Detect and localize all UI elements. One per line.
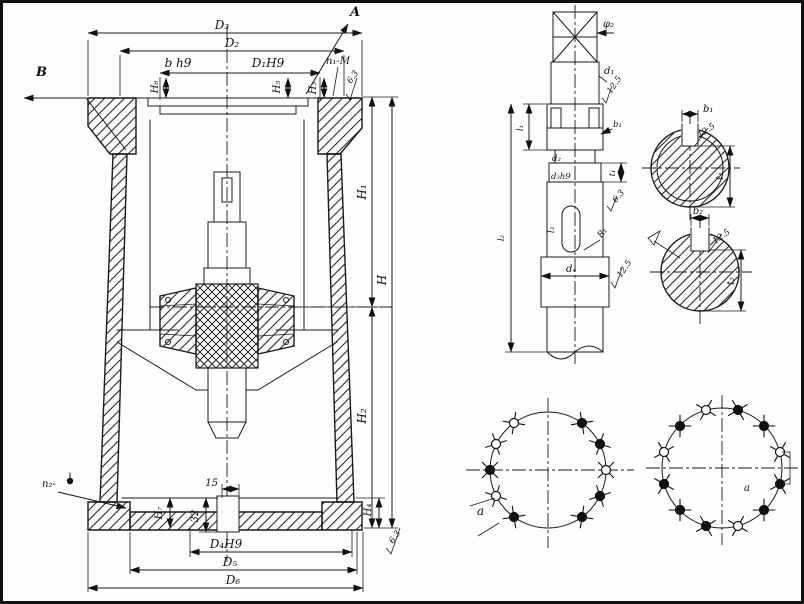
dim-h3-label: H₃ — [308, 82, 319, 96]
dim-b1-side-label: b₁ — [613, 120, 622, 130]
dim-h-label: H — [375, 274, 389, 286]
angle-a-label: a — [744, 483, 750, 494]
dim-h1-label: H₁ — [355, 184, 369, 200]
dim-h2-label: H₂ — [355, 408, 369, 424]
dim-l3: l₃ — [547, 226, 557, 233]
dim-l3-label: l₃ — [547, 226, 557, 233]
drawing-sheet: B A D₃ D₂ b h9 D₁H9 H₆ — [0, 0, 804, 604]
dim-15-label: 15 — [205, 478, 218, 489]
dim-h5-label: H₅ — [272, 81, 283, 95]
dim-32-label: 32 — [190, 510, 201, 523]
dim-h7-label: H₇ — [154, 507, 165, 521]
dim-d2-label: D₂ — [224, 36, 240, 50]
dim-d5-label: D₅ — [222, 555, 238, 569]
n2-label: n₂- — [42, 479, 56, 490]
dim-t1-label: t₁ — [715, 172, 726, 180]
dim-d1-label: d₁ — [604, 66, 614, 77]
dim-d4h9-label: D₄H9 — [209, 537, 243, 551]
technical-drawing: B A D₃ D₂ b h9 D₁H9 H₆ — [0, 0, 804, 604]
dim-d3h9-label: d₃h9 — [551, 172, 571, 182]
view-b-label: B — [35, 65, 47, 80]
view-a-label: A — [348, 5, 360, 20]
dim-phi2-label: φ₂ — [603, 19, 614, 30]
dim-d6-label: D₆ — [225, 573, 241, 587]
dim-t1-side-label: t₁ — [608, 170, 618, 177]
keyway-cut — [690, 228, 710, 251]
dim-t2-label: t₂ — [726, 277, 737, 285]
dim-d3-label: D₃ — [214, 18, 230, 32]
dim-d1h9-label: D₁H9 — [251, 56, 285, 70]
n1-m-label: n₁-M — [326, 56, 351, 67]
dim-b1-label: b₁ — [703, 104, 713, 115]
angle-a-label: a — [477, 504, 484, 518]
dim-b-h9-label: b h9 — [165, 56, 192, 70]
dim-b2-label: b₂ — [693, 206, 703, 217]
dim-l1-label: l₁ — [516, 125, 526, 131]
dim-h4-label: H₄ — [363, 504, 374, 518]
dim-d2-label: d₂ — [552, 154, 561, 164]
hole-symbol-icon — [67, 478, 73, 484]
dim-l2-label: l₂ — [497, 234, 507, 241]
keyway-cut — [681, 124, 699, 146]
dim-d4-label: d₄ — [566, 264, 576, 275]
dim-h6-label: H₆ — [150, 81, 161, 95]
